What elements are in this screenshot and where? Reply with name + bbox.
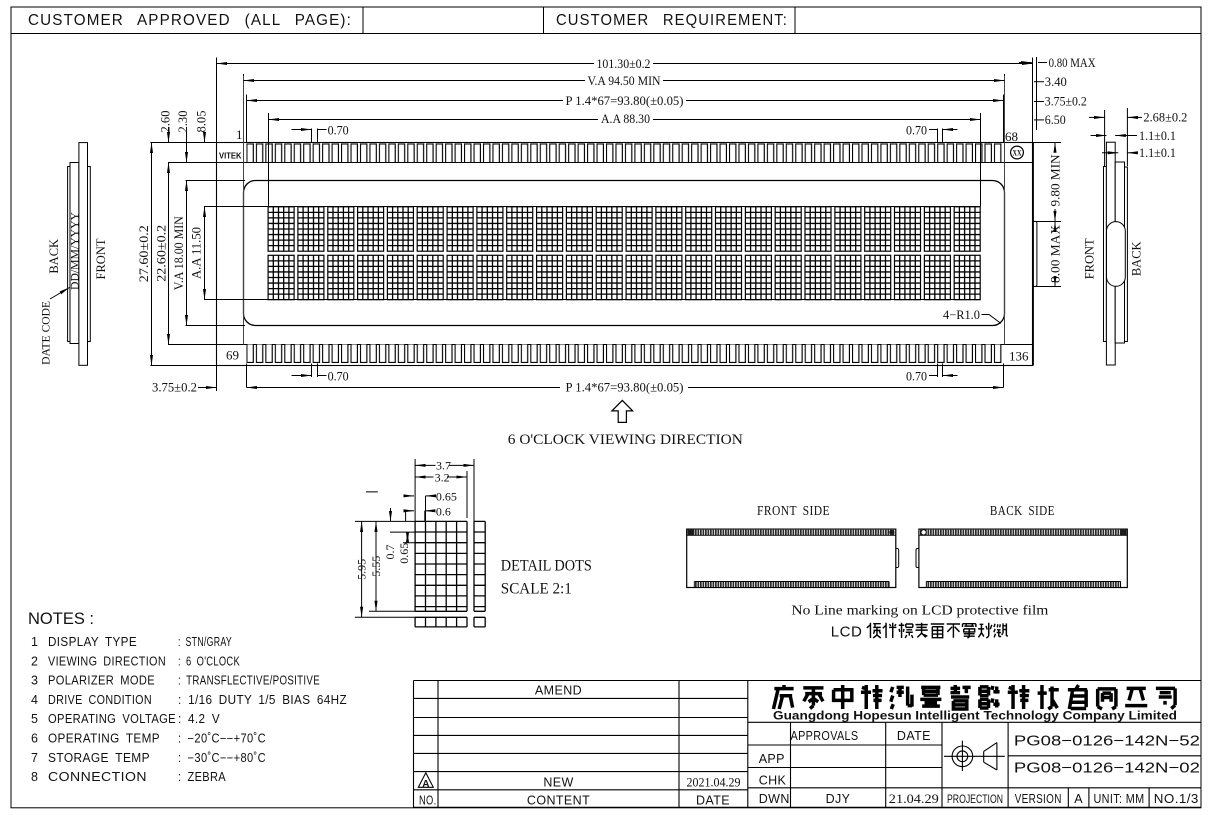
- svg-text:P 1.4*67=93.80(±0.05): P 1.4*67=93.80(±0.05): [566, 94, 684, 108]
- svg-text:SCALE 2:1: SCALE 2:1: [501, 581, 572, 598]
- svg-text:0.65: 0.65: [436, 490, 457, 504]
- svg-text:NEW: NEW: [543, 776, 573, 790]
- svg-text:LCD: LCD: [831, 624, 863, 641]
- svg-text:CUSTOMER APPROVED (ALL PAGE: CUSTOMER APPROVED (ALL PAGE):: [28, 12, 352, 29]
- svg-text:DATE: DATE: [696, 794, 730, 808]
- svg-text:3.75±0.2: 3.75±0.2: [152, 380, 197, 394]
- svg-text:A: A: [1074, 792, 1083, 806]
- svg-text:: 1/16 DUTY 1/5 BIAS 64HZ: : 1/16 DUTY 1/5 BIAS 64HZ: [178, 693, 347, 707]
- svg-text:V.A 94.50 MIN: V.A 94.50 MIN: [588, 74, 661, 88]
- svg-text:DWN: DWN: [759, 792, 790, 806]
- svg-text:CHK: CHK: [759, 773, 787, 787]
- svg-text:8.05: 8.05: [194, 111, 208, 133]
- svg-text:3.2: 3.2: [435, 471, 450, 485]
- svg-text:VERSION: VERSION: [1015, 792, 1062, 806]
- svg-text:27.60±0.2: 27.60±0.2: [137, 225, 151, 282]
- svg-text:Guangdong Hopesun Intelligent: Guangdong Hopesun Intelligent Technology…: [773, 709, 1177, 722]
- svg-text:NO.1/3: NO.1/3: [1154, 792, 1199, 806]
- svg-text:P 1.4*67=93.80(±0.05): P 1.4*67=93.80(±0.05): [566, 381, 684, 395]
- svg-text:: ZEBRA: : ZEBRA: [178, 770, 226, 784]
- svg-text:5: 5: [31, 712, 38, 726]
- svg-text:1: 1: [31, 635, 38, 649]
- svg-text:DD/MM/YYYY: DD/MM/YYYY: [68, 212, 82, 290]
- svg-text:0.6: 0.6: [436, 505, 451, 519]
- svg-text:No Line marking on LCD protect: No Line marking on LCD protective film: [791, 604, 1048, 619]
- svg-text:8.00 MAX: 8.00 MAX: [1049, 225, 1063, 283]
- svg-text:CUSTOMER REQUIREMENT:: CUSTOMER REQUIREMENT:: [556, 12, 788, 29]
- svg-text:DATE: DATE: [897, 729, 931, 743]
- svg-text:3.75±0.2: 3.75±0.2: [1045, 95, 1087, 109]
- svg-text:BACK SIDE: BACK SIDE: [990, 503, 1055, 518]
- svg-text:21.04.29: 21.04.29: [889, 792, 939, 806]
- svg-text:DJY: DJY: [826, 792, 851, 806]
- svg-text:NO.: NO.: [419, 794, 437, 808]
- svg-text:: −30˚C−−+80˚C: : −30˚C−−+80˚C: [178, 751, 266, 765]
- svg-text:0.70: 0.70: [328, 369, 349, 383]
- svg-text:: TRANSFLECTIVE/POSITIVE: : TRANSFLECTIVE/POSITIVE: [178, 674, 320, 688]
- svg-text:1: 1: [236, 127, 243, 142]
- svg-text:AMEND: AMEND: [535, 684, 582, 698]
- svg-text:5.95: 5.95: [355, 559, 369, 580]
- svg-text:APP: APP: [759, 752, 785, 766]
- svg-text:DISPLAY TYPE: DISPLAY TYPE: [48, 635, 137, 649]
- svg-text:CONTENT: CONTENT: [527, 794, 590, 808]
- svg-text:XX: XX: [1013, 148, 1022, 157]
- svg-text:5.55: 5.55: [369, 556, 383, 577]
- svg-text:CONNECTION: CONNECTION: [48, 770, 147, 784]
- svg-text:3: 3: [31, 674, 38, 688]
- svg-text:1.1±0.1: 1.1±0.1: [1139, 146, 1176, 160]
- svg-text:POLARIZER MODE: POLARIZER MODE: [48, 674, 155, 688]
- svg-text:FRONT SIDE: FRONT SIDE: [757, 503, 830, 518]
- svg-text:22.60±0.2: 22.60±0.2: [155, 225, 169, 282]
- svg-text:1.1±0.1: 1.1±0.1: [1139, 129, 1176, 143]
- svg-text:0.70: 0.70: [328, 123, 349, 137]
- svg-text:FRONT: FRONT: [1083, 238, 1097, 279]
- svg-text:OPERATING VOLTAGE: OPERATING VOLTAGE: [48, 712, 176, 726]
- svg-text:0.70: 0.70: [906, 369, 927, 383]
- svg-text:6.50: 6.50: [1045, 113, 1066, 127]
- svg-text:136: 136: [1009, 349, 1029, 364]
- svg-text:69: 69: [226, 348, 239, 363]
- svg-text:A: A: [422, 779, 429, 790]
- svg-text:2.68±0.2: 2.68±0.2: [1143, 111, 1187, 125]
- svg-text:4: 4: [31, 693, 38, 707]
- svg-text:68: 68: [1005, 129, 1018, 144]
- svg-text:2021.04.29: 2021.04.29: [687, 776, 741, 790]
- svg-text:3.40: 3.40: [1045, 75, 1067, 89]
- svg-text:STORAGE TEMP: STORAGE TEMP: [48, 751, 150, 765]
- svg-text:PG08−0126−142N−02: PG08−0126−142N−02: [1014, 760, 1200, 777]
- svg-text:9.80 MIN: 9.80 MIN: [1049, 155, 1063, 207]
- svg-text:2.30: 2.30: [176, 111, 190, 133]
- svg-text:OPERATING TEMP: OPERATING TEMP: [48, 732, 160, 746]
- svg-text:0.7: 0.7: [383, 545, 397, 560]
- svg-text:6: 6: [31, 732, 38, 746]
- svg-text:BACK: BACK: [1130, 241, 1144, 276]
- svg-text:UNIT: MM: UNIT: MM: [1094, 792, 1145, 806]
- svg-text:0.65: 0.65: [397, 543, 411, 564]
- svg-text:PROJECTION: PROJECTION: [947, 794, 1003, 806]
- svg-text:0.70: 0.70: [906, 123, 927, 137]
- svg-text:A.A 11.50: A.A 11.50: [190, 227, 204, 279]
- svg-text:: STN/GRAY: : STN/GRAY: [178, 635, 232, 649]
- svg-text:: −20˚C−−+70˚C: : −20˚C−−+70˚C: [178, 732, 266, 746]
- svg-text:PG08−0126−142N−52: PG08−0126−142N−52: [1014, 732, 1200, 749]
- svg-text:DRIVE CONDITION: DRIVE CONDITION: [48, 693, 152, 707]
- svg-text:APPROVALS: APPROVALS: [791, 729, 859, 743]
- svg-text:: 4.2 V: : 4.2 V: [178, 712, 220, 726]
- svg-text:NOTES :: NOTES :: [28, 610, 94, 628]
- svg-text:DATE CODE: DATE CODE: [39, 301, 53, 365]
- svg-text:2.60: 2.60: [159, 111, 173, 133]
- svg-text:2: 2: [31, 654, 38, 668]
- svg-text:6 O'CLOCK VIEWING DIRECTION: 6 O'CLOCK VIEWING DIRECTION: [508, 432, 744, 448]
- svg-text:7: 7: [31, 751, 38, 765]
- svg-text:FRONT: FRONT: [94, 238, 108, 279]
- svg-text:DETAIL DOTS: DETAIL DOTS: [501, 558, 592, 575]
- svg-text:BACK: BACK: [47, 239, 61, 274]
- svg-text:V.A 18.00 MIN: V.A 18.00 MIN: [172, 216, 186, 290]
- svg-text:A.A 88.30: A.A 88.30: [601, 112, 650, 126]
- svg-text:VITEK: VITEK: [219, 151, 242, 160]
- svg-text:4−R1.0: 4−R1.0: [943, 308, 980, 322]
- svg-text:101.30±0.2: 101.30±0.2: [597, 57, 651, 71]
- svg-text:: 6 O'CLOCK: : 6 O'CLOCK: [178, 654, 240, 668]
- svg-text:8: 8: [31, 770, 38, 784]
- svg-text:VIEWING DIRECTION: VIEWING DIRECTION: [48, 654, 166, 668]
- svg-text:0.80 MAX: 0.80 MAX: [1049, 56, 1096, 70]
